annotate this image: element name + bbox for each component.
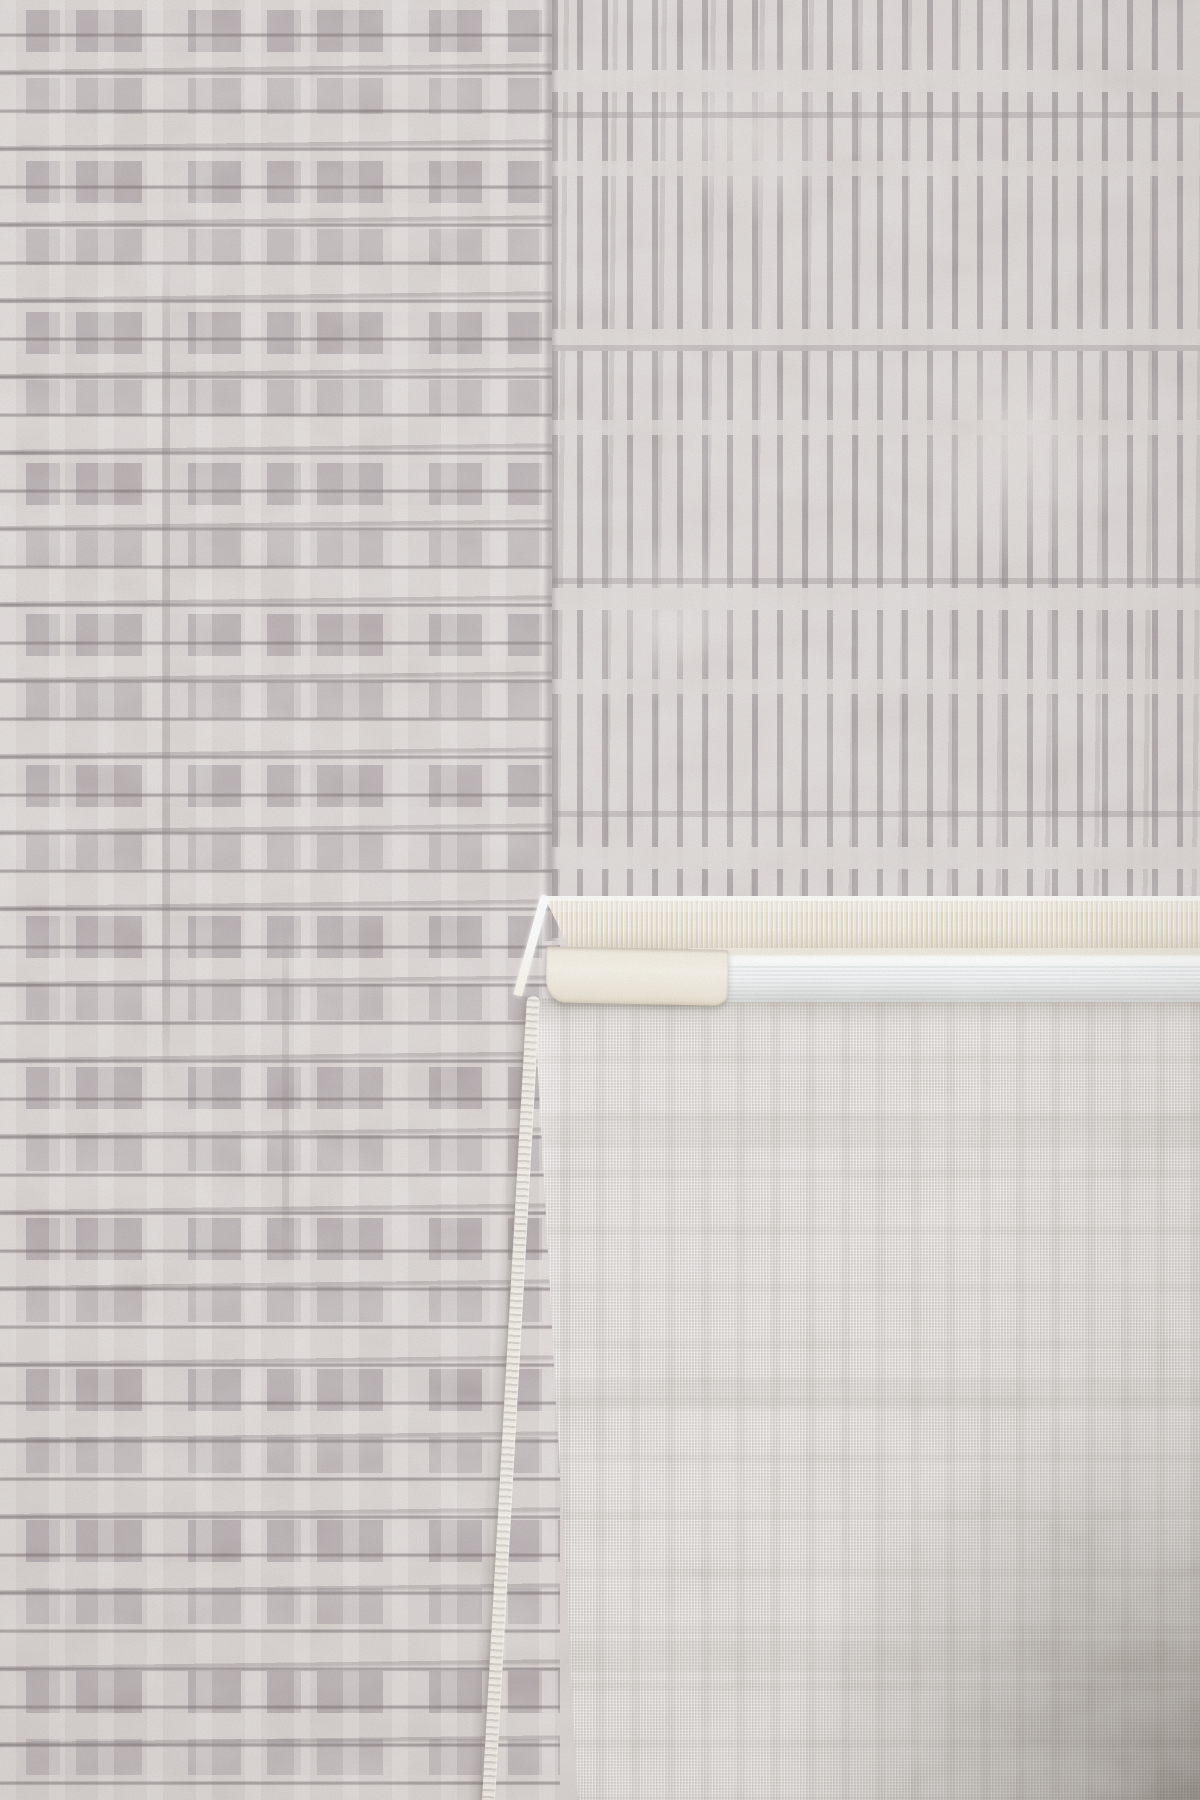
- rug-backing: [526, 998, 1200, 1800]
- fringe-fold-tab: [545, 946, 728, 1005]
- pattern-seam-line: [543, 0, 557, 941]
- pattern-vertical-accent: [162, 255, 170, 1085]
- front-pattern-horizontal: [0, 0, 560, 1800]
- front-pattern-vertical: [552, 0, 1200, 945]
- rug-photo: [0, 0, 1200, 1800]
- binding-tape: [690, 948, 1200, 1002]
- pattern-vertical-accent: [282, 920, 289, 1270]
